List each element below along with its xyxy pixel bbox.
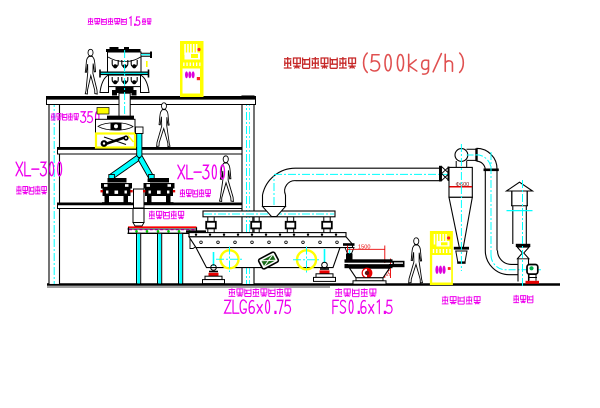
svg-text:1500: 1500 — [358, 245, 370, 251]
svg-text:Φ600: Φ600 — [456, 182, 470, 188]
